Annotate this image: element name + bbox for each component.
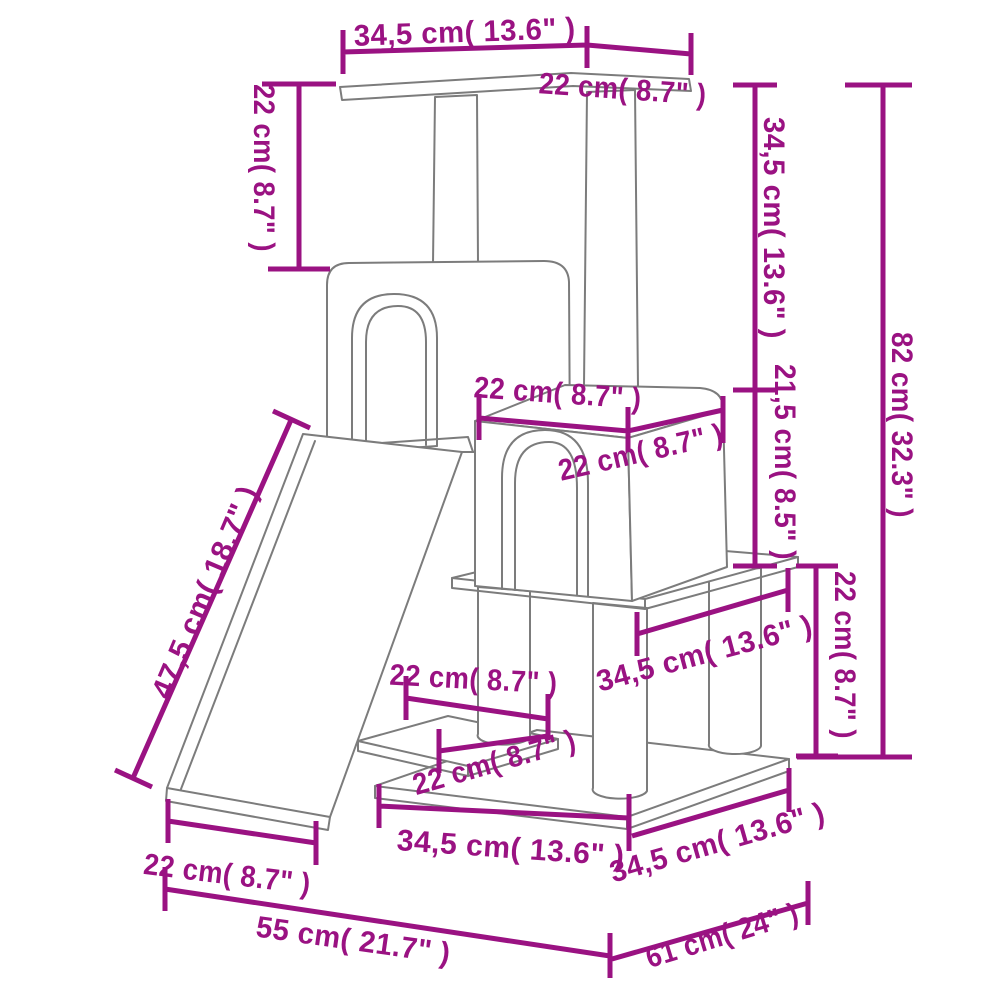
cat-tree-dimension-diagram: 34,5 cm( 13.6" ) 22 cm( 8.7" ) 22 cm( 8.… bbox=[0, 0, 1000, 1000]
dim-top-post-height-label: 22 cm( 8.7" ) bbox=[247, 84, 280, 252]
top-post-right bbox=[584, 90, 638, 388]
top-post-left bbox=[433, 95, 478, 264]
dim-footprint-depth-label: 61 cm( 24" ) bbox=[642, 897, 803, 975]
dim-top-board-depth-label: 22 cm( 8.7" ) bbox=[538, 67, 708, 112]
dim-house-section-height-label: 21,5 cm( 8.5" ) bbox=[768, 364, 801, 560]
dimension-diagram-page: 34,5 cm( 13.6" ) 22 cm( 8.7" ) 22 cm( 8.… bbox=[0, 0, 1000, 1000]
ramp bbox=[167, 434, 462, 817]
dim-upper-section-height-label: 34,5 cm( 13.6" ) bbox=[757, 117, 790, 339]
dim-lower-section-height-label: 22 cm( 8.7" ) bbox=[828, 571, 861, 739]
dim-step-width-label: 22 cm( 8.7" ) bbox=[389, 659, 558, 701]
dim-base-front-width-label: 34,5 cm( 13.6" ) bbox=[396, 824, 626, 873]
dim-total-height-label: 82 cm( 32.3" ) bbox=[885, 332, 918, 518]
